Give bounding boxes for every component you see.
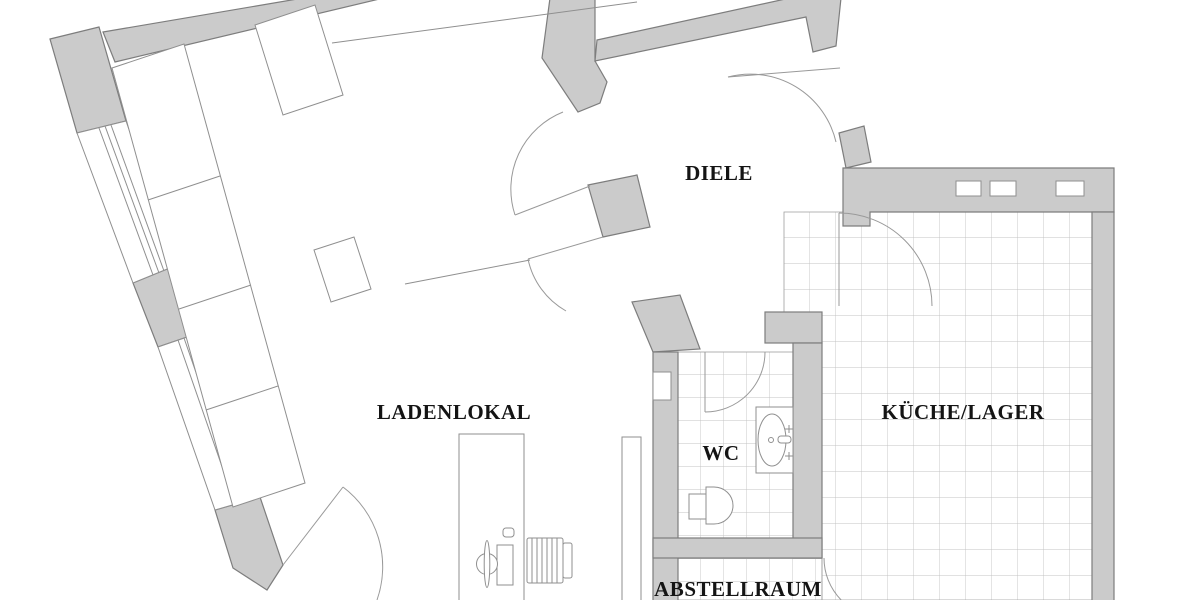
wall-diele-north: [595, 0, 841, 61]
kitchen-window-2: [990, 181, 1016, 196]
display-table: [314, 237, 371, 302]
door-leaf-diele-lower: [528, 237, 603, 259]
door-leaf-diele-upper: [515, 186, 590, 215]
room-label-wc: WC: [702, 441, 739, 465]
room-label-kueche-lager: KÜCHE/LAGER: [881, 400, 1044, 424]
floor-plan-canvas: DIELE LADENLOKAL KÜCHE/LAGER WC ABSTELLR…: [0, 0, 1200, 600]
toilet-tank: [689, 494, 706, 519]
wc-niche: [653, 372, 671, 400]
wall-wc-south: [653, 538, 822, 558]
desk: [459, 434, 524, 600]
display-shelf-top: [255, 5, 343, 115]
drawer-cabinet-handle: [563, 543, 572, 578]
room-label-abstellraum: ABSTELLRAUM: [654, 577, 822, 600]
office-chair-back: [484, 541, 490, 588]
room-label-diele: DIELE: [685, 161, 753, 185]
wall-kitchen-east: [1092, 212, 1114, 600]
door-leaf-entrance: [728, 68, 840, 77]
wall-pillar-bottomleft: [215, 497, 283, 590]
door-arc-entrance: [728, 74, 836, 142]
door-arc-diele-lower: [528, 259, 566, 311]
wall-post-diele: [588, 175, 650, 237]
desk-item: [503, 528, 514, 537]
floor-plan-drawing: DIELE LADENLOKAL KÜCHE/LAGER WC ABSTELLR…: [0, 0, 1200, 600]
sink-faucet: [778, 436, 791, 443]
door-leaf-shop-entrance: [283, 487, 343, 565]
wall-wc-northeast: [765, 312, 822, 343]
wall-wc-east: [793, 343, 822, 558]
wall-kitchen-door-jamb: [839, 126, 871, 168]
room-label-ladenlokal: LADENLOKAL: [377, 400, 531, 424]
kitchen-window-3: [1056, 181, 1084, 196]
wall-top-band: [103, 0, 392, 62]
wall-wc-northwest-pillar: [632, 295, 700, 352]
door-arc-shop-entrance: [343, 487, 383, 600]
neighbour-wall-outline: [622, 437, 641, 600]
desk-monitor: [497, 545, 513, 585]
kitchen-window-1: [956, 181, 981, 196]
diele-boundary-line-lower: [405, 260, 530, 284]
fixtures: [112, 5, 793, 600]
